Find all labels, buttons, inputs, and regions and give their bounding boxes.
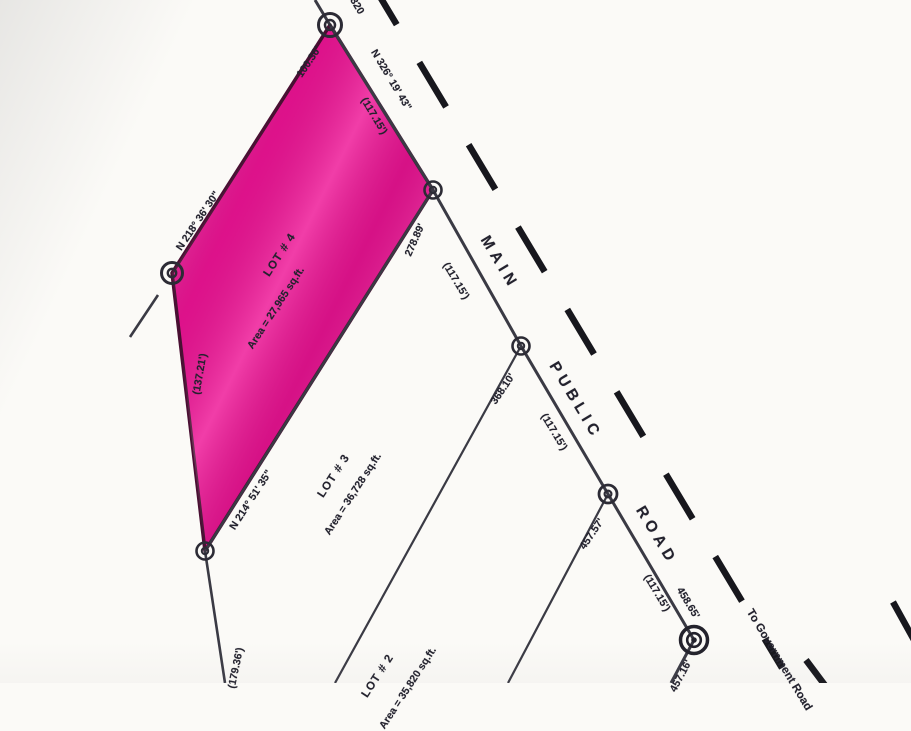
label-bearing-left-edge: N 218° 36' 30" <box>174 189 222 253</box>
label-to-government-road: To Government Road <box>744 607 814 713</box>
label-bearing-lot-line: N 214° 51' 35" <box>227 468 275 532</box>
label-dist-100: 100.36' <box>294 44 323 79</box>
label-dist-frontage-2: (117.15') <box>440 260 471 301</box>
label-road-word-main: MAIN <box>476 233 522 293</box>
label-dist-278: 278.89' <box>402 222 427 259</box>
label-lot3-area: Area = 36,728 sq.ft. <box>322 451 384 538</box>
label-dist-179: (179.36') <box>226 646 246 689</box>
label-bearing-frontage: N 326° 19' 43" <box>368 47 414 112</box>
label-dist-457: 457.57' <box>577 516 606 551</box>
map-labels-layer: 320N 326° 19' 43"(117.15')(117.15')(117.… <box>0 0 911 683</box>
label-dist-frontage-3: (117.15') <box>538 411 569 452</box>
label-top-partial: 320 <box>347 0 366 17</box>
label-lot2-name: LOT # 2 <box>360 652 397 700</box>
label-road-word-road: ROAD <box>631 503 680 569</box>
label-dist-137: (137.21') <box>190 352 209 395</box>
label-dist-368: 368.10' <box>488 371 517 406</box>
label-dist-partial-bottom: 457.16' <box>668 658 695 694</box>
label-dist-458: 458.65' <box>674 585 702 621</box>
label-dist-frontage-1: (117.15') <box>358 95 389 136</box>
label-lot4-area: Area = 27,965 sq.ft. <box>245 265 307 352</box>
label-dist-frontage-4: (117.15') <box>641 572 672 613</box>
